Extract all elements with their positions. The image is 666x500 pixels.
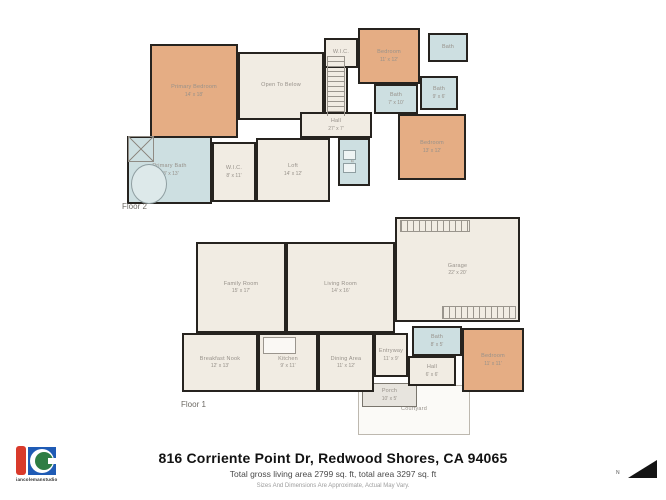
room-dimensions: 8' x 11' — [226, 173, 242, 179]
garage-storage-top-fixture — [400, 220, 470, 232]
room-dimensions: 10' x 5' — [382, 396, 398, 402]
room-bath-f1: Bath8' x 5' — [412, 326, 462, 356]
room-dimensions: 7' x 10' — [388, 100, 404, 106]
room-entryway: Entryway11' x 9' — [374, 333, 408, 377]
room-name: Primary Bedroom — [171, 84, 217, 91]
room-label: Hall27' x 7' — [328, 118, 344, 131]
room-dimensions: 6' x 6' — [426, 372, 439, 378]
room-label: Bedroom13' x 12' — [420, 140, 444, 153]
garage-storage-bottom-fixture — [442, 306, 516, 319]
room-name: Family Room — [224, 281, 259, 288]
room-bedroom-f1: Bedroom11' x 11' — [462, 328, 524, 392]
room-dimensions: 27' x 7' — [328, 126, 344, 132]
room-name: Bedroom — [420, 140, 444, 147]
room-bath-right: Bath9' x 6' — [420, 76, 458, 110]
room-loft: Loft14' x 12' — [256, 138, 330, 202]
room-name: Hall — [328, 118, 344, 125]
room-open-to-below: Open To Below — [238, 52, 324, 120]
room-living-room: Living Room14' x 16' — [286, 242, 395, 333]
room-family-room: Family Room15' x 17' — [196, 242, 286, 333]
room-name: Breakfast Nook — [200, 356, 240, 363]
room-laundry: Laundry — [338, 138, 370, 186]
logo-red-bar — [16, 446, 26, 475]
room-label: Bedroom11' x 11' — [481, 353, 505, 366]
room-bedroom-2: Bedroom11' x 12' — [358, 28, 420, 84]
room-name: Dining Area — [331, 356, 362, 363]
bathtub-fixture — [131, 164, 167, 204]
floor-2-label: Floor 2 — [122, 202, 147, 211]
room-name: Porch — [382, 388, 398, 395]
room-label: Bedroom11' x 12' — [377, 49, 401, 62]
skylight-x-fixture — [128, 136, 154, 162]
room-bath-left: Bath7' x 10' — [374, 84, 418, 114]
room-label: Breakfast Nook12' x 13' — [200, 356, 240, 369]
room-label: W.I.C.8' x 11' — [226, 165, 242, 178]
room-bedroom-3: Bedroom13' x 12' — [398, 114, 466, 180]
room-name: Living Room — [324, 281, 357, 288]
room-name: Hall — [426, 364, 439, 371]
room-label: Dining Area11' x 12' — [331, 356, 362, 369]
room-dimensions: 14' x 16' — [324, 288, 357, 294]
room-dimensions: 9' x 6' — [433, 94, 446, 100]
studio-logo-text: iancolemanstudio — [16, 477, 64, 482]
room-dimensions: 14' x 12' — [284, 171, 302, 177]
dryer-fixture — [343, 163, 356, 173]
room-breakfast-nook: Breakfast Nook12' x 13' — [182, 333, 258, 392]
room-label: Open To Below — [261, 82, 301, 89]
room-dimensions: 11' x 12' — [331, 363, 362, 369]
address-title: 816 Corriente Point Dr, Redwood Shores, … — [0, 450, 666, 466]
room-label: Loft14' x 12' — [284, 163, 302, 176]
room-label: Garage22' x 20' — [448, 263, 468, 276]
room-label: Entryway11' x 9' — [379, 348, 403, 361]
room-label: Living Room14' x 16' — [324, 281, 357, 294]
room-name: Garage — [448, 263, 468, 270]
room-label: Kitchen9' x 11' — [278, 356, 298, 369]
logo-c-notch — [48, 458, 56, 464]
floorplan-canvas: Primary Bedroom14' x 18'Open To BelowW.I… — [0, 0, 666, 500]
room-dimensions: 11' x 12' — [377, 57, 401, 63]
studio-logo: iancolemanstudio — [16, 446, 64, 482]
room-label: Hall6' x 6' — [426, 364, 439, 377]
room-label: Bath8' x 5' — [431, 334, 444, 347]
room-dimensions: 22' x 20' — [448, 270, 468, 276]
room-name: Entryway — [379, 348, 403, 355]
title-block: 816 Corriente Point Dr, Redwood Shores, … — [0, 450, 666, 489]
room-name: Bedroom — [377, 49, 401, 56]
room-label: Bath9' x 6' — [433, 86, 446, 99]
room-label: Primary Bedroom14' x 18' — [171, 84, 217, 97]
room-name: Kitchen — [278, 356, 298, 363]
room-name: Bath — [442, 44, 454, 51]
room-dimensions: 8' x 5' — [431, 342, 444, 348]
room-wic-2: W.I.C.8' x 11' — [212, 142, 256, 202]
room-dimensions: 15' x 17' — [224, 288, 259, 294]
room-name: Loft — [284, 163, 302, 170]
room-name: Bath — [431, 334, 444, 341]
room-label: Bath — [442, 44, 454, 51]
room-dimensions: 12' x 13' — [200, 363, 240, 369]
room-name: Bedroom — [481, 353, 505, 360]
room-dining-area: Dining Area11' x 12' — [318, 333, 374, 392]
room-name: W.I.C. — [226, 165, 242, 172]
floor-1-label: Floor 1 — [181, 400, 206, 409]
room-dimensions: 9' x 11' — [278, 363, 298, 369]
stairs-fixture — [327, 56, 345, 116]
disclaimer-text: Sizes And Dimensions Are Approximate, Ac… — [0, 483, 666, 489]
area-subtitle: Total gross living area 2799 sq. ft, tot… — [0, 469, 666, 479]
room-hall-f1: Hall6' x 6' — [408, 356, 456, 386]
room-dimensions: 11' x 11' — [481, 361, 505, 367]
room-name: Bath — [388, 92, 404, 99]
room-primary-bedroom: Primary Bedroom14' x 18' — [150, 44, 238, 138]
room-name: Bath — [433, 86, 446, 93]
north-arrow-label: N — [616, 470, 620, 476]
room-label: Family Room15' x 17' — [224, 281, 259, 294]
room-label: Bath7' x 10' — [388, 92, 404, 105]
room-bath-top-right: Bath — [428, 33, 468, 62]
washer-fixture — [343, 150, 356, 160]
room-dimensions: 14' x 18' — [171, 92, 217, 98]
room-dimensions: 11' x 9' — [379, 356, 403, 362]
kitchen-island-fixture — [263, 337, 296, 354]
room-label: Porch10' x 5' — [382, 388, 398, 401]
logo-blue-box — [28, 447, 56, 475]
room-name: Open To Below — [261, 82, 301, 89]
studio-logo-icon — [16, 446, 60, 475]
room-dimensions: 13' x 12' — [420, 148, 444, 154]
